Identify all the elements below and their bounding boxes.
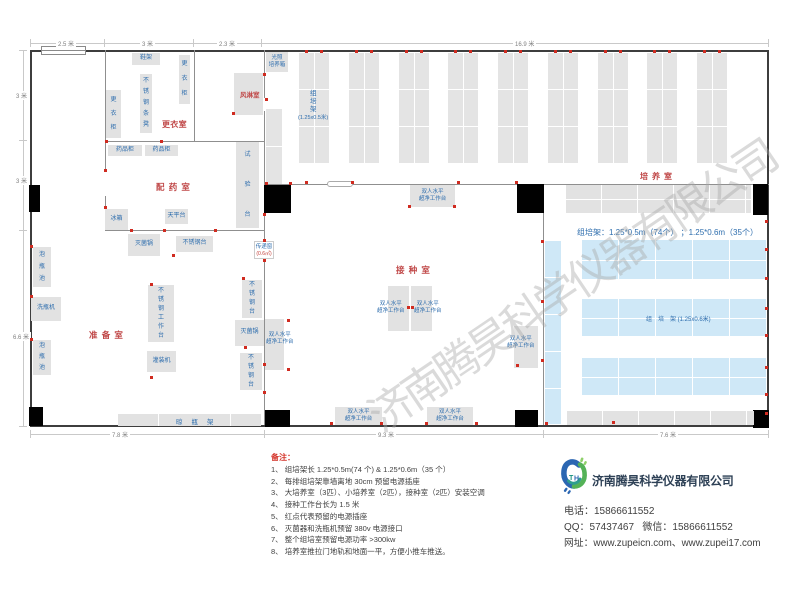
- svg-text:H: H: [574, 476, 579, 483]
